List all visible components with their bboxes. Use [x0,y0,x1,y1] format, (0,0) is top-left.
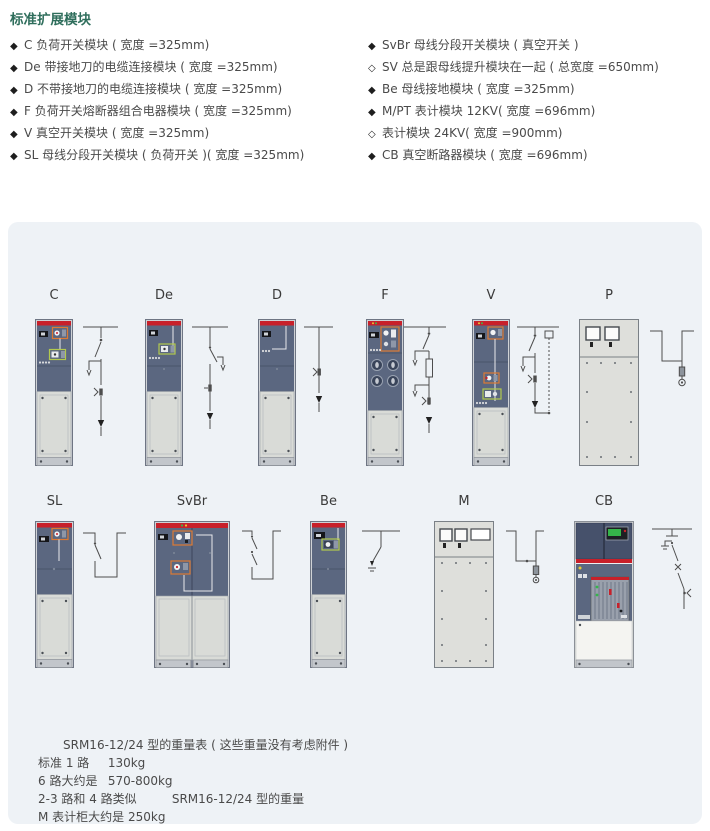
page-title: 标准扩展模块 [10,8,91,28]
spec-list-left: ◆C 负荷开关模块 ( 宽度 =325mm) ◆De 带接地刀的电缆连接模块 (… [10,34,360,166]
module-label-v: V [472,288,510,303]
cabinet-p-graphic [579,317,639,468]
spec-text: V 真空开关模块 ( 宽度 =325mm) [24,126,209,140]
spec-item: ◇表计模块 24KV( 宽度 =900mm) [368,122,703,144]
module-label-c: C [35,288,73,303]
cabinet-m-graphic [434,519,494,670]
schematic-c-diagram [80,317,120,468]
diamond-bullet-icon: ◆ [10,36,24,58]
diamond-bullet-icon: ◆ [368,146,382,168]
diamond-bullet-icon: ◇ [368,58,382,80]
spec-item: ◆CB 真空断路器模块 ( 宽度 =696mm) [368,144,703,166]
spec-item: ◆SL 母线分段开关模块 ( 负荷开关 )( 宽度 =325mm) [10,144,360,166]
cabinet-de-graphic [145,317,183,468]
module-label-be: Be [310,494,347,509]
diamond-bullet-icon: ◆ [368,102,382,124]
spec-item: ◇SV 总是跟母线提升模块在一起 ( 总宽度 =650mm) [368,56,703,78]
module-label-d: D [258,288,296,303]
module-label-cb: CB [574,494,634,509]
module-label-m: M [434,494,494,509]
schematic-de-diagram [190,317,230,468]
schematic-d-diagram [300,317,336,468]
weight-label: 标准 1 路 [38,754,104,772]
spec-text: SV 总是跟母线提升模块在一起 ( 总宽度 =650mm) [382,60,659,74]
diamond-bullet-icon: ◆ [10,146,24,168]
weight-row: 6 路大约是 570-800kg [38,772,348,790]
schematic-f-diagram [402,317,448,468]
weight-label: 2-3 路和 4 路类似 [38,790,168,808]
spec-text: F 负荷开关熔断器组合电器模块 ( 宽度 =325mm) [24,104,292,118]
spec-item: ◆D 不带接地刀的电缆连接模块 ( 宽度 =325mm) [10,78,360,100]
cabinet-v-graphic [472,317,510,468]
diamond-bullet-icon: ◇ [368,124,382,146]
weight-value: SRM16-12/24 型的重量 [172,792,304,806]
spec-item: ◆Be 母线接地模块 ( 宽度 =325mm) [368,78,703,100]
diamond-bullet-icon: ◆ [10,124,24,146]
module-label-sl: SL [35,494,74,509]
spec-text: SL 母线分段开关模块 ( 负荷开关 )( 宽度 =325mm) [24,148,304,162]
schematic-cb-diagram [650,519,694,654]
spec-list-right: ◆SvBr 母线分段开关模块 ( 真空开关 ) ◇SV 总是跟母线提升模块在一起… [368,34,703,166]
spec-text: M/PT 表计模块 12KV( 宽度 =696mm) [382,104,595,118]
module-label-de: De [145,288,183,303]
weight-row: M 表计柜大约是 250kg [38,808,348,826]
spec-text: SvBr 母线分段开关模块 ( 真空开关 ) [382,38,579,52]
cabinet-c-graphic [35,317,73,468]
spec-text: De 带接地刀的电缆连接模块 ( 宽度 =325mm) [24,60,278,74]
weight-table: SRM16-12/24 型的重量表 ( 这些重量没有考虑附件 ) 标准 1 路 … [38,736,348,826]
module-label-p: P [579,288,639,303]
weight-value: 130kg [108,756,145,770]
schematic-be-diagram [360,519,402,634]
spec-item: ◆M/PT 表计模块 12KV( 宽度 =696mm) [368,100,703,122]
diamond-bullet-icon: ◆ [10,58,24,80]
weight-value: 570-800kg [108,774,173,788]
modules-panel: C De [8,222,702,824]
weight-label: M 表计柜大约是 250kg [38,810,165,824]
diamond-bullet-icon: ◆ [368,80,382,102]
cabinet-d-graphic [258,317,296,468]
spec-item: ◆De 带接地刀的电缆连接模块 ( 宽度 =325mm) [10,56,360,78]
schematic-m-diagram [504,519,546,634]
spec-text: D 不带接地刀的电缆连接模块 ( 宽度 =325mm) [24,82,282,96]
spec-text: Be 母线接地模块 ( 宽度 =325mm) [382,82,575,96]
diamond-bullet-icon: ◆ [10,102,24,124]
module-label-f: F [366,288,404,303]
weight-row: 2-3 路和 4 路类似 SRM16-12/24 型的重量 [38,790,348,808]
spec-text: CB 真空断路器模块 ( 宽度 =696mm) [382,148,588,162]
schematic-svbr-diagram [240,519,282,634]
weight-label: 6 路大约是 [38,772,104,790]
spec-item: ◆F 负荷开关熔断器组合电器模块 ( 宽度 =325mm) [10,100,360,122]
weight-row: 标准 1 路 130kg [38,754,348,772]
cabinet-be-graphic [310,519,347,670]
spec-text: 表计模块 24KV( 宽度 =900mm) [382,126,563,140]
schematic-sl-diagram [81,519,127,634]
cabinet-f-graphic [366,317,404,468]
weight-table-title: SRM16-12/24 型的重量表 ( 这些重量没有考虑附件 ) [38,736,348,754]
diamond-bullet-icon: ◆ [368,36,382,58]
schematic-p-diagram [648,317,696,432]
diamond-bullet-icon: ◆ [10,80,24,102]
schematic-v-diagram [515,317,561,468]
spec-item: ◆SvBr 母线分段开关模块 ( 真空开关 ) [368,34,703,56]
cabinet-cb-graphic [574,519,634,670]
module-label-svbr: SvBr [154,494,230,509]
spec-text: C 负荷开关模块 ( 宽度 =325mm) [24,38,209,52]
cabinet-svbr-graphic [154,519,230,670]
spec-item: ◆C 负荷开关模块 ( 宽度 =325mm) [10,34,360,56]
spec-item: ◆V 真空开关模块 ( 宽度 =325mm) [10,122,360,144]
cabinet-sl-graphic [35,519,74,670]
